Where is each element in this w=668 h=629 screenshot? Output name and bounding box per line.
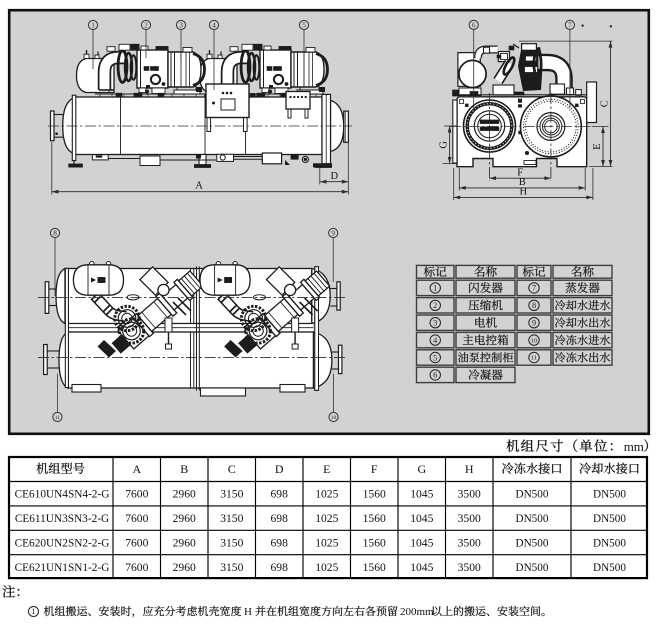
svg-text:1: 1: [433, 284, 437, 293]
svg-text:E: E: [592, 143, 603, 149]
svg-text:DN500: DN500: [593, 562, 626, 574]
svg-text:3150: 3150: [220, 488, 243, 501]
svg-text:1560: 1560: [363, 537, 386, 550]
svg-text:3500: 3500: [458, 512, 481, 525]
svg-text:CE610UN4SN4-2-G: CE610UN4SN4-2-G: [15, 489, 110, 501]
svg-text:G: G: [417, 462, 426, 476]
svg-text:6: 6: [433, 371, 437, 380]
svg-text:mm: mm: [624, 439, 644, 454]
svg-text:H: H: [520, 187, 528, 198]
svg-text:9: 9: [532, 319, 536, 328]
svg-text:10: 10: [331, 415, 337, 421]
svg-text:1560: 1560: [363, 512, 386, 525]
svg-text:C: C: [228, 462, 236, 476]
svg-text:7: 7: [532, 284, 536, 293]
svg-text:698: 698: [271, 488, 289, 501]
svg-text:1045: 1045: [410, 512, 433, 525]
svg-text:2960: 2960: [173, 512, 196, 525]
svg-text:1045: 1045: [410, 488, 433, 501]
svg-text:8: 8: [532, 301, 536, 310]
svg-text:1025: 1025: [315, 561, 338, 574]
svg-text:2960: 2960: [173, 561, 196, 574]
svg-text:2: 2: [144, 21, 148, 29]
svg-text:6: 6: [472, 21, 476, 29]
svg-text:CE620UN2SN2-2-G: CE620UN2SN2-2-G: [15, 538, 110, 550]
svg-text:CE611UN3SN3-2-G: CE611UN3SN3-2-G: [15, 513, 109, 525]
svg-text:7600: 7600: [125, 512, 148, 525]
svg-text:10: 10: [531, 337, 537, 344]
svg-text:1560: 1560: [363, 561, 386, 574]
svg-text:B: B: [180, 462, 188, 476]
svg-text:CE621UN1SN1-2-G: CE621UN1SN1-2-G: [15, 562, 110, 574]
svg-text:3: 3: [433, 319, 437, 328]
svg-text:3500: 3500: [458, 488, 481, 501]
svg-text:4: 4: [433, 336, 437, 345]
svg-text:8: 8: [53, 229, 57, 237]
svg-text:C: C: [599, 100, 610, 107]
svg-text:DN500: DN500: [593, 513, 626, 525]
svg-text:1: 1: [32, 607, 36, 616]
svg-text:3: 3: [179, 21, 183, 29]
svg-text:11: 11: [531, 355, 537, 362]
svg-text:DN500: DN500: [593, 489, 626, 501]
svg-text:698: 698: [271, 561, 289, 574]
svg-text:7600: 7600: [125, 537, 148, 550]
svg-text:DN500: DN500: [516, 538, 549, 550]
svg-text:H: H: [465, 462, 474, 476]
svg-text:3150: 3150: [220, 512, 243, 525]
svg-text:H: H: [244, 606, 252, 618]
svg-text:4: 4: [212, 21, 216, 29]
svg-text:3150: 3150: [220, 537, 243, 550]
svg-text:7600: 7600: [125, 488, 148, 501]
svg-text:3500: 3500: [458, 561, 481, 574]
svg-text:D: D: [275, 462, 284, 476]
svg-text:200mm: 200mm: [400, 606, 434, 618]
svg-text:G: G: [438, 141, 449, 149]
svg-text:E: E: [323, 462, 330, 476]
svg-text:3500: 3500: [458, 537, 481, 550]
svg-text:1045: 1045: [410, 537, 433, 550]
svg-text:3150: 3150: [220, 561, 243, 574]
svg-text:1: 1: [91, 21, 95, 29]
svg-text:DN500: DN500: [516, 562, 549, 574]
svg-text:1045: 1045: [410, 561, 433, 574]
svg-text:D: D: [331, 171, 339, 182]
svg-text:DN500: DN500: [516, 513, 549, 525]
svg-text:698: 698: [271, 537, 289, 550]
svg-text:1025: 1025: [315, 488, 338, 501]
svg-text:5: 5: [302, 21, 306, 29]
svg-text:11: 11: [55, 415, 61, 421]
svg-text:698: 698: [271, 512, 289, 525]
svg-text:2960: 2960: [173, 488, 196, 501]
svg-text:7: 7: [568, 21, 572, 29]
svg-text:1560: 1560: [363, 488, 386, 501]
svg-text:2: 2: [433, 301, 437, 310]
svg-text:9: 9: [331, 229, 335, 237]
svg-text:A: A: [195, 181, 203, 192]
svg-text:DN500: DN500: [516, 489, 549, 501]
svg-text:1025: 1025: [315, 537, 338, 550]
svg-text:F: F: [371, 462, 378, 476]
svg-text:DN500: DN500: [593, 538, 626, 550]
svg-text:7600: 7600: [125, 561, 148, 574]
svg-text:A: A: [132, 462, 141, 476]
svg-text:2960: 2960: [173, 537, 196, 550]
svg-text:1025: 1025: [315, 512, 338, 525]
svg-text:5: 5: [433, 353, 437, 362]
